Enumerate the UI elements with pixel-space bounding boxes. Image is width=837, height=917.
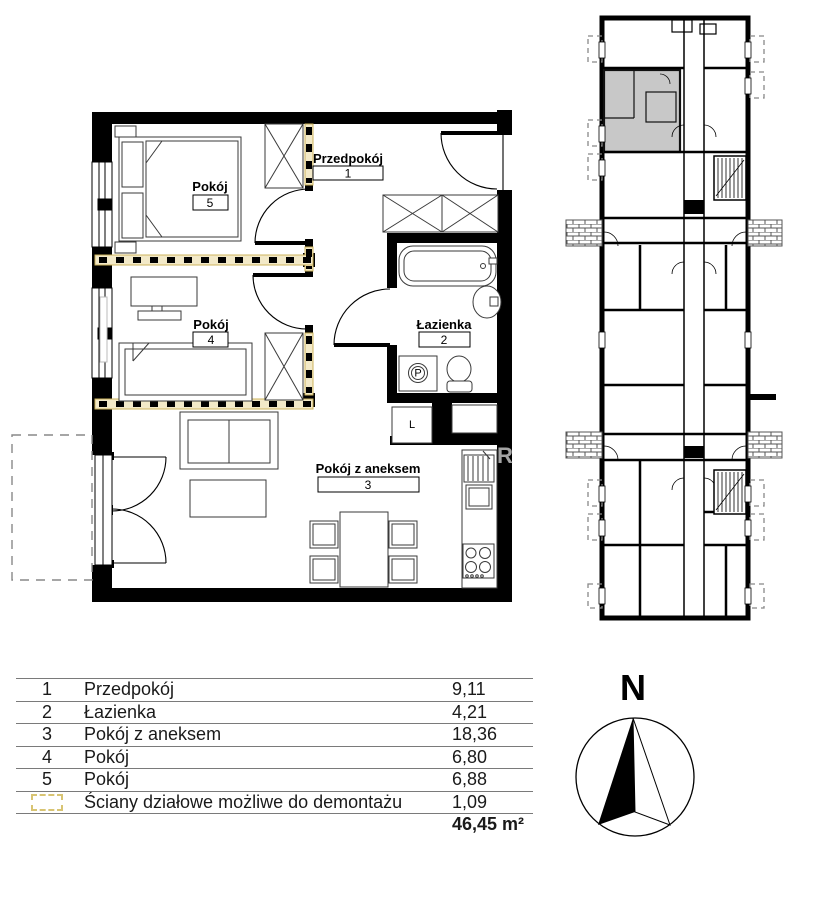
room-name: Pokój <box>78 747 452 768</box>
stove <box>463 544 494 578</box>
niche <box>452 405 497 433</box>
compass-needle-dark <box>598 718 635 825</box>
table-row: 1 Przedpokój 9,11 <box>16 678 533 702</box>
coffee-table <box>190 480 266 517</box>
north-label: N <box>620 667 646 708</box>
dining-set <box>310 512 417 587</box>
bathtub <box>399 246 497 286</box>
room-area: 6,88 <box>452 769 533 790</box>
room-name: Pokój z aneksem <box>78 724 452 745</box>
wardrobe <box>265 124 303 188</box>
watermark-letter: R <box>497 443 513 468</box>
room-name: Przedpokój <box>78 679 452 700</box>
room-area: 6,80 <box>452 747 533 768</box>
room-area: 1,09 <box>452 792 533 813</box>
label-pokoj-4: Pokój <box>193 317 228 332</box>
wardrobe <box>265 333 303 400</box>
compass: N <box>576 667 694 836</box>
room-area: 9,11 <box>452 679 533 700</box>
radiator <box>100 297 107 362</box>
num-pokoj-5: 5 <box>207 196 214 210</box>
table-row: 5 Pokój 6,88 <box>16 769 533 792</box>
num-pokoj-z-aneksem: 3 <box>365 478 372 492</box>
balcony-outline <box>12 435 92 580</box>
desk <box>131 277 197 320</box>
room-name: Pokój <box>78 769 452 790</box>
highlighted-unit <box>604 70 680 152</box>
room-area: 4,21 <box>452 702 533 723</box>
dashed-wall-icon <box>16 794 78 811</box>
room-area: 18,36 <box>452 724 533 745</box>
table-row-demountable-walls: Ściany działowe możliwe do demontażu 1,0… <box>16 792 533 815</box>
room-number: 2 <box>16 702 78 723</box>
building-overview <box>566 18 782 618</box>
toilet <box>447 356 472 392</box>
room-number: 3 <box>16 724 78 745</box>
main-apartment-plan: Przedpokój 1 Pokój 5 Łazienka 2 Pokój 4 … <box>12 110 513 602</box>
compass-needle-light <box>633 718 670 825</box>
room-number: 1 <box>16 679 78 700</box>
room-number: 5 <box>16 769 78 790</box>
label-lazienka: Łazienka <box>417 317 473 332</box>
label-przedpokoj: Przedpokój <box>313 151 383 166</box>
table-row: 4 Pokój 6,80 <box>16 747 533 770</box>
label-pokoj-5: Pokój <box>192 179 227 194</box>
label-pokoj-z-aneksem: Pokój z aneksem <box>316 461 421 476</box>
hall-wardrobes <box>383 195 498 232</box>
num-przedpokoj: 1 <box>345 167 352 181</box>
room-number: 4 <box>16 747 78 768</box>
total-area: 46,45 m² <box>452 814 533 835</box>
room-name: Łazienka <box>78 702 452 723</box>
table-row: 3 Pokój z aneksem 18,36 <box>16 724 533 747</box>
sofa <box>180 412 278 469</box>
room-name: Ściany działowe możliwe do demontażu <box>78 792 452 813</box>
table-row: 2 Łazienka 4,21 <box>16 702 533 725</box>
single-bed <box>119 343 252 401</box>
num-pokoj-4: 4 <box>208 333 215 347</box>
washing-machine-label: P <box>414 368 421 380</box>
table-row-total: 46,45 m² <box>16 814 533 836</box>
room-legend-table: 1 Przedpokój 9,11 2 Łazienka 4,21 3 Pokó… <box>16 678 533 836</box>
windows <box>92 162 112 565</box>
num-lazienka: 2 <box>441 333 448 347</box>
furniture <box>100 124 501 588</box>
sink <box>473 286 501 318</box>
closet-l-label: L <box>409 419 415 431</box>
